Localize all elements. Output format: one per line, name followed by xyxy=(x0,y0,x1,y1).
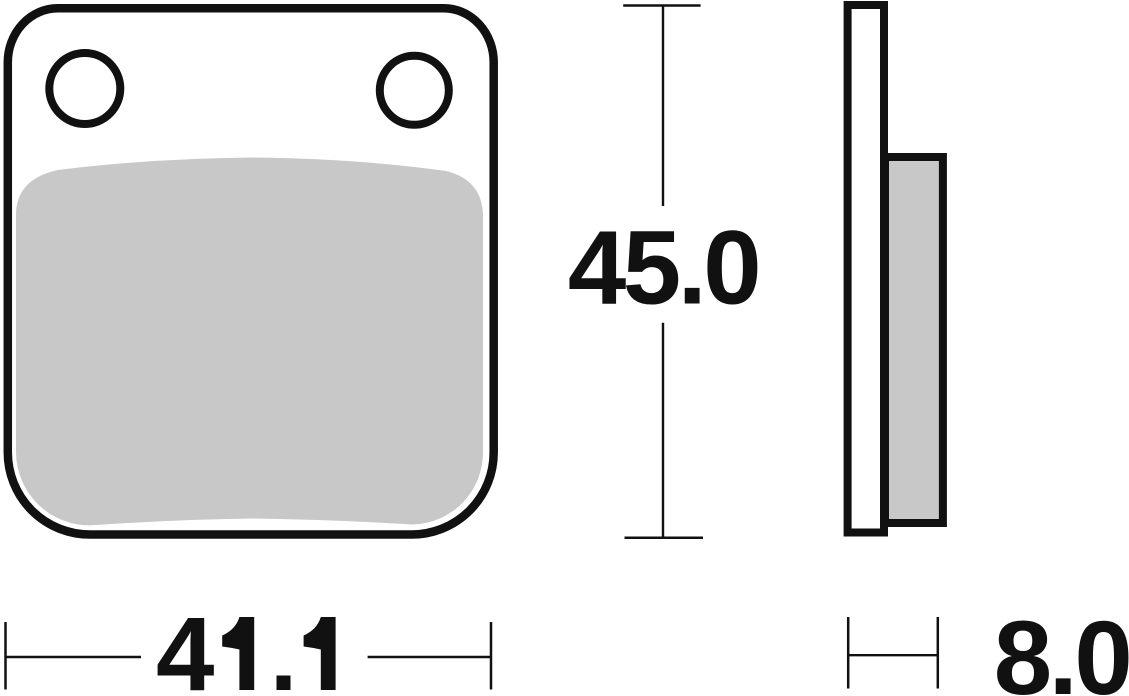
svg-text:45.0: 45.0 xyxy=(568,209,758,326)
svg-text:8.0: 8.0 xyxy=(994,600,1129,696)
svg-text:4: 4 xyxy=(156,596,214,696)
